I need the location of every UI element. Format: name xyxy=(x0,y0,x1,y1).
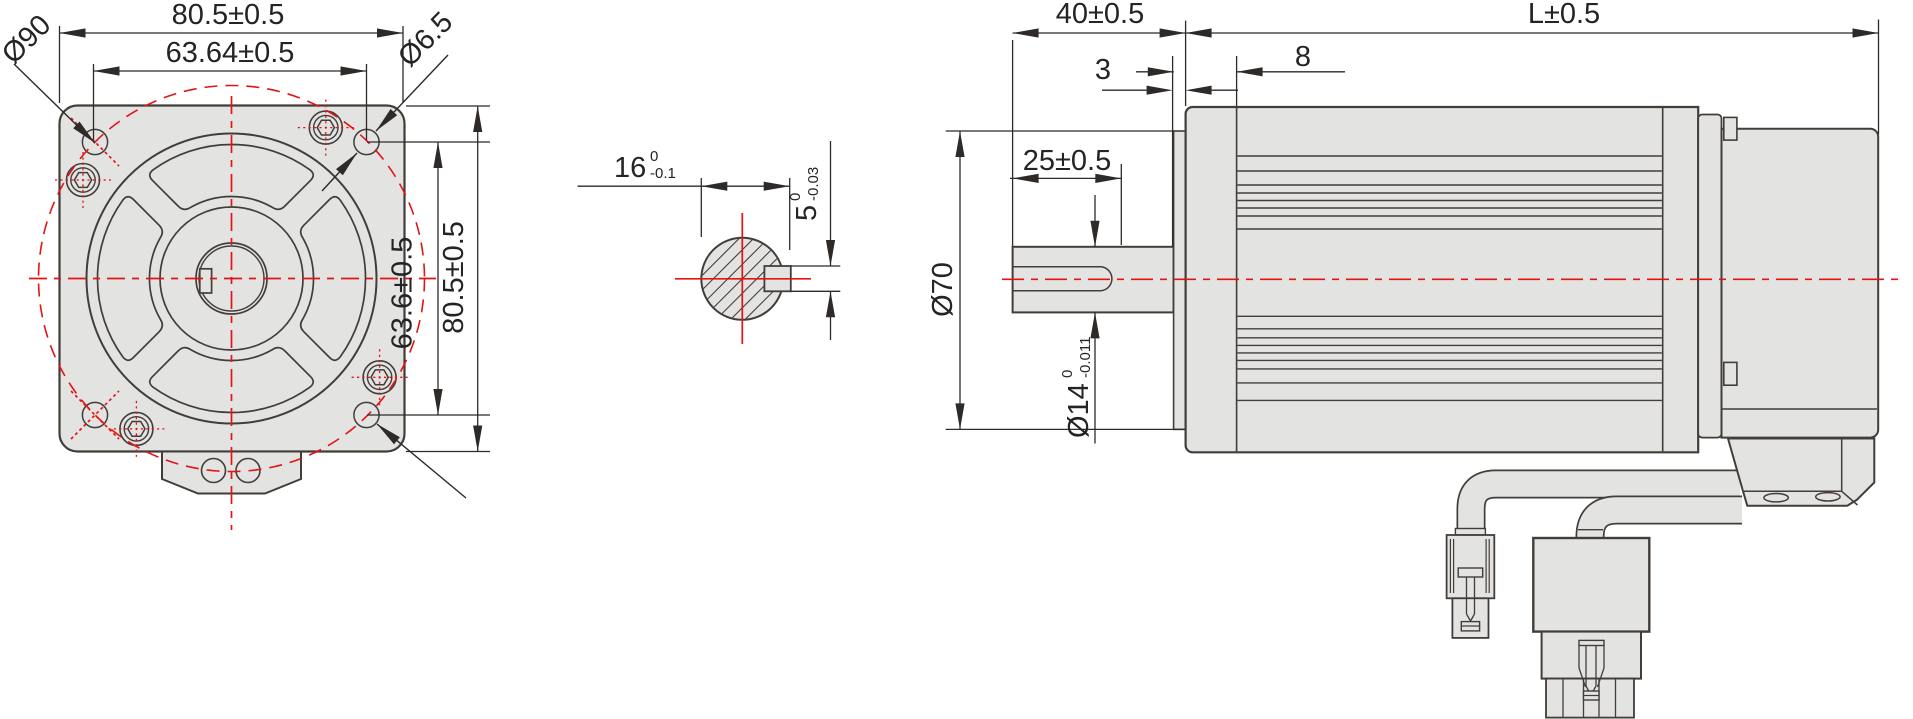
svg-text:-0.011: -0.011 xyxy=(1077,337,1094,378)
svg-text:8: 8 xyxy=(1295,41,1311,73)
svg-text:Ø14: Ø14 xyxy=(1063,383,1095,438)
svg-text:0: 0 xyxy=(650,148,658,165)
svg-text:16: 16 xyxy=(614,152,646,184)
svg-text:0: 0 xyxy=(1059,370,1076,378)
svg-text:63.6±0.5: 63.6±0.5 xyxy=(387,237,419,350)
svg-text:80.5±0.5: 80.5±0.5 xyxy=(172,0,285,31)
svg-text:0: 0 xyxy=(787,193,804,201)
svg-text:L±0.5: L±0.5 xyxy=(1528,0,1600,30)
svg-text:Ø70: Ø70 xyxy=(927,262,959,317)
svg-text:3: 3 xyxy=(1095,54,1111,86)
svg-text:80.5±0.5: 80.5±0.5 xyxy=(438,221,470,334)
svg-text:40±0.5: 40±0.5 xyxy=(1056,0,1145,30)
svg-text:5: 5 xyxy=(791,205,823,221)
svg-text:-0.03: -0.03 xyxy=(805,167,822,201)
svg-text:25±0.5: 25±0.5 xyxy=(1023,145,1112,177)
svg-text:-0.1: -0.1 xyxy=(650,165,676,182)
svg-text:63.64±0.5: 63.64±0.5 xyxy=(166,37,295,69)
